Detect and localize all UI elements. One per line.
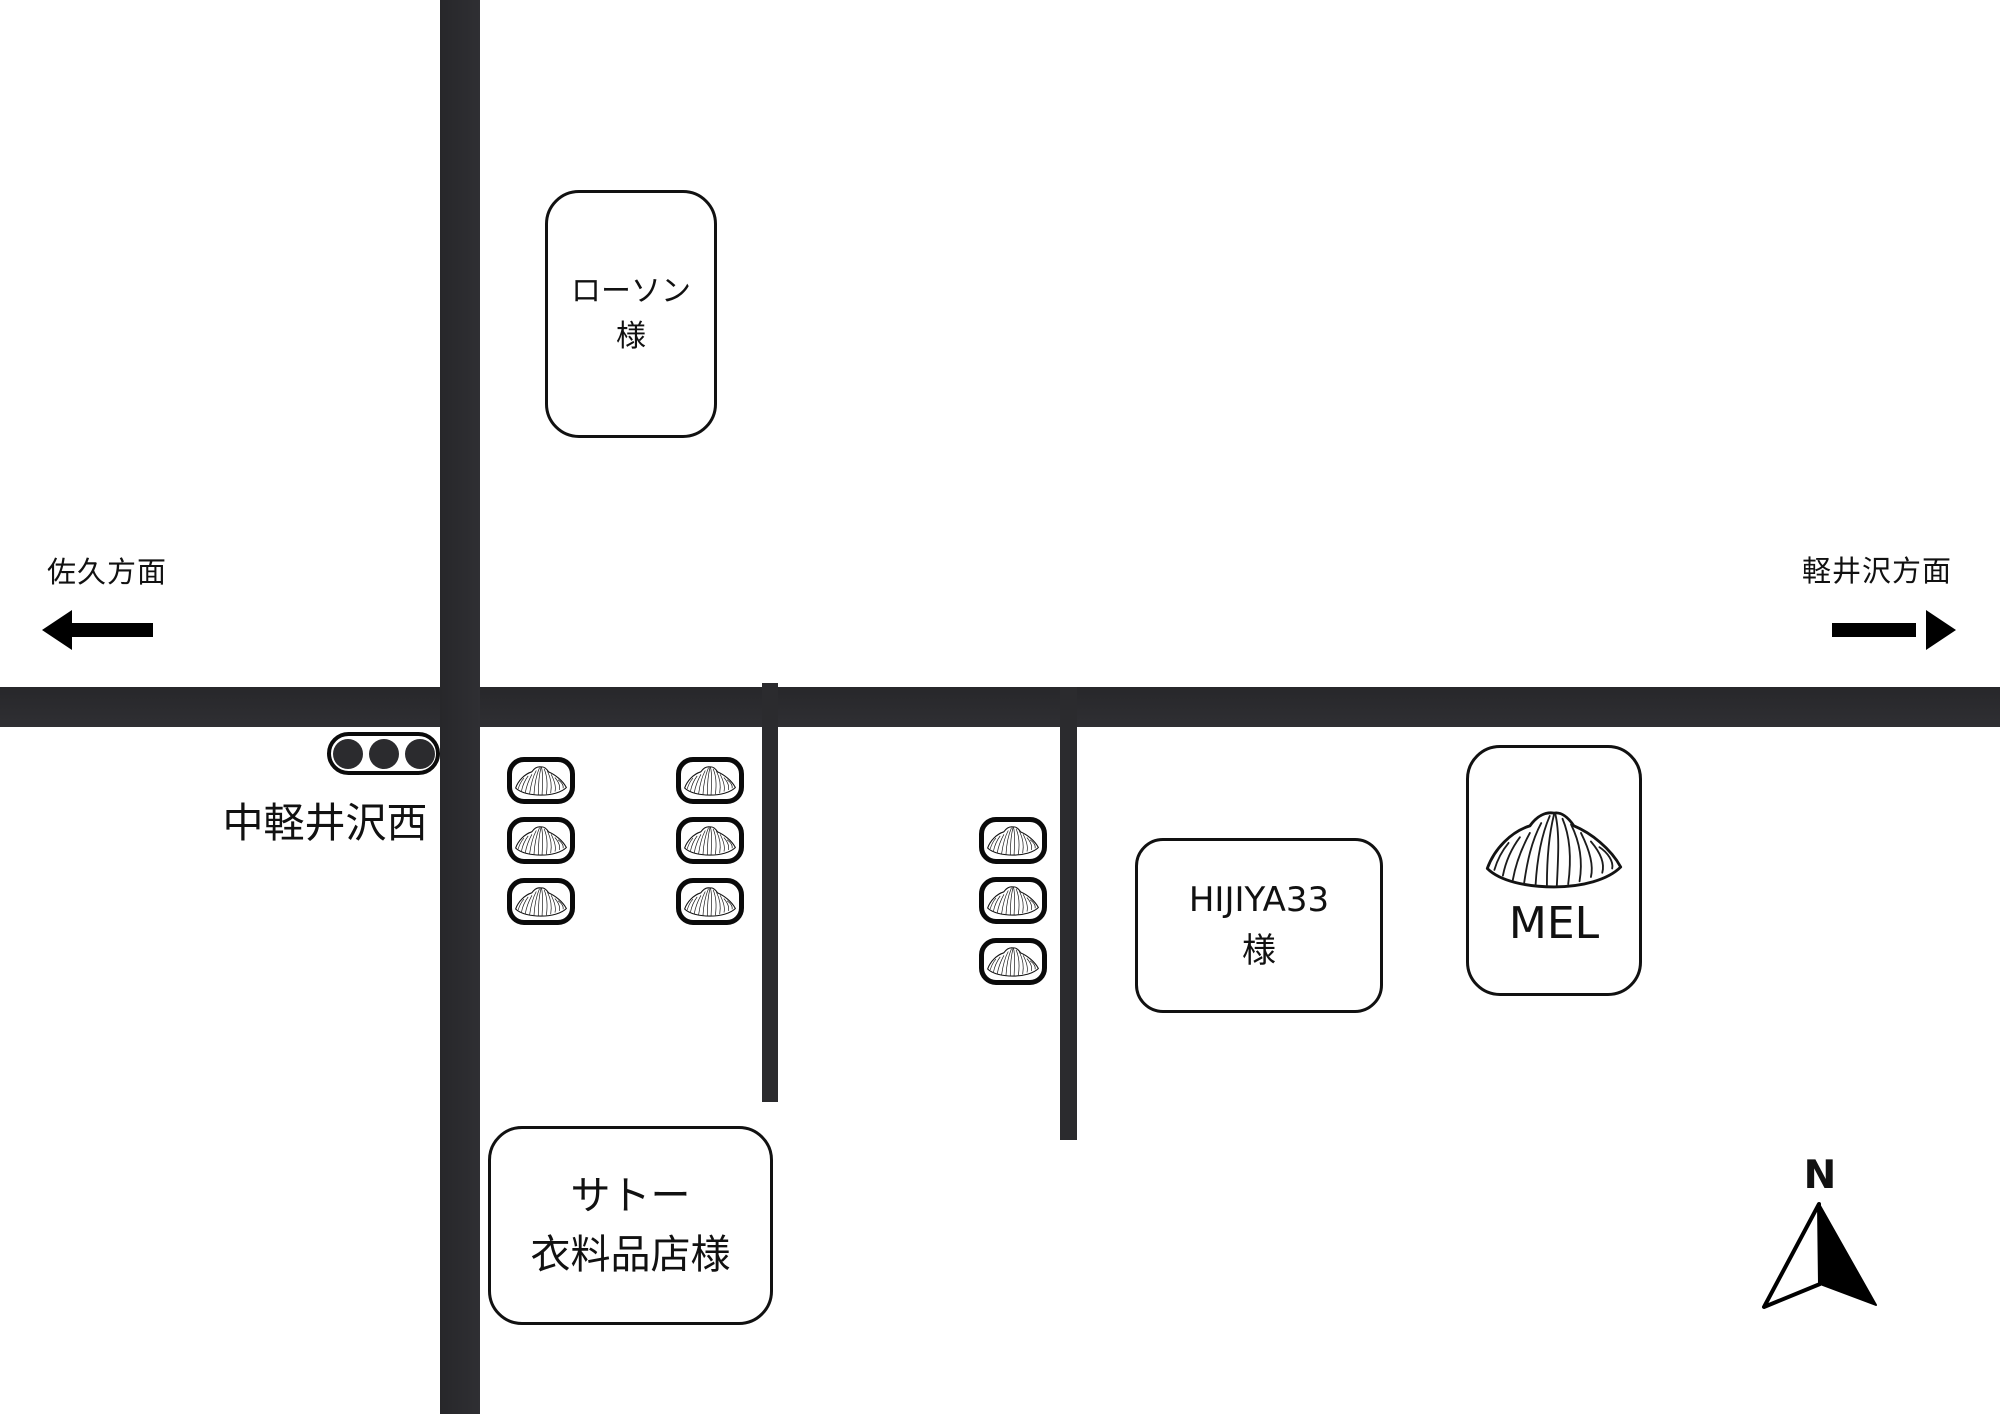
croissant-icon <box>986 945 1040 979</box>
croissant-icon <box>514 764 568 798</box>
place-mel: MEL <box>1466 745 1642 996</box>
compass: N <box>1754 1155 1886 1320</box>
place-lawson-line1: ローソン <box>571 269 691 314</box>
croissant-icon <box>986 884 1040 918</box>
traffic-light-lamp <box>333 739 363 769</box>
croissant-marker <box>676 757 744 804</box>
road-side-middle <box>762 683 778 1102</box>
road-horizontal-main <box>0 687 2000 727</box>
compass-north-arrow-icon <box>1759 1199 1881 1311</box>
place-sato-line2: 衣料品店様 <box>531 1226 731 1285</box>
croissant-icon <box>683 824 737 858</box>
croissant-marker <box>979 877 1047 924</box>
place-mel-label: MEL <box>1509 898 1599 949</box>
place-hijiya33-line1: HIJIYA33 <box>1189 875 1329 926</box>
compass-north-label: N <box>1754 1155 1886 1197</box>
croissant-marker <box>507 757 575 804</box>
place-sato: サトー 衣料品店様 <box>488 1126 773 1325</box>
road-vertical-main <box>440 0 480 1414</box>
croissant-icon <box>683 885 737 919</box>
arrow-right-icon <box>1830 608 1958 652</box>
croissant-icon <box>1481 806 1627 894</box>
place-lawson-line2: 様 <box>616 314 646 359</box>
place-sato-line1: サトー <box>571 1167 691 1226</box>
croissant-icon <box>683 764 737 798</box>
arrow-left-icon <box>40 608 155 652</box>
croissant-marker <box>507 878 575 925</box>
croissant-marker <box>507 817 575 864</box>
place-lawson: ローソン 様 <box>545 190 717 438</box>
place-hijiya33: HIJIYA33 様 <box>1135 838 1383 1013</box>
traffic-light-lamp <box>405 739 435 769</box>
direction-west-label: 佐久方面 <box>47 549 167 591</box>
place-hijiya33-line2: 様 <box>1242 926 1276 977</box>
croissant-icon <box>514 824 568 858</box>
direction-east-label: 軽井沢方面 <box>1802 548 1952 590</box>
croissant-icon <box>986 824 1040 858</box>
croissant-marker <box>979 938 1047 985</box>
croissant-icon <box>514 885 568 919</box>
croissant-marker <box>979 817 1047 864</box>
traffic-light-icon <box>327 732 440 775</box>
intersection-name: 中軽井沢西 <box>215 789 435 849</box>
croissant-marker <box>676 878 744 925</box>
croissant-marker <box>676 817 744 864</box>
access-map: 佐久方面 軽井沢方面 中軽井沢西 ローソン 様 HIJIYA33 様 MEL サ… <box>0 0 2000 1414</box>
road-side-right <box>1060 687 1077 1140</box>
traffic-light-lamp <box>369 739 399 769</box>
